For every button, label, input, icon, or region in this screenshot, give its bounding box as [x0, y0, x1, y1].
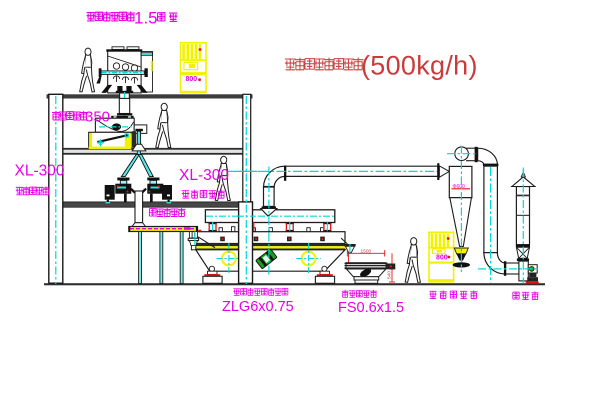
svg-text:Φ600: Φ600 [453, 184, 466, 190]
svg-text:(500kg/h): (500kg/h) [361, 51, 478, 81]
svg-text:1.5: 1.5 [134, 9, 158, 28]
svg-text:540: 540 [387, 271, 393, 279]
svg-text:XL-300: XL-300 [179, 167, 229, 184]
svg-text:800: 800 [436, 255, 448, 262]
svg-text:ZLG6x0.75: ZLG6x0.75 [222, 299, 294, 315]
svg-text:XL-300: XL-300 [15, 163, 65, 180]
svg-text:350: 350 [85, 109, 110, 126]
svg-text:800: 800 [186, 76, 198, 83]
svg-text:FS0.6x1.5: FS0.6x1.5 [338, 300, 404, 316]
svg-text:1500: 1500 [361, 249, 372, 255]
